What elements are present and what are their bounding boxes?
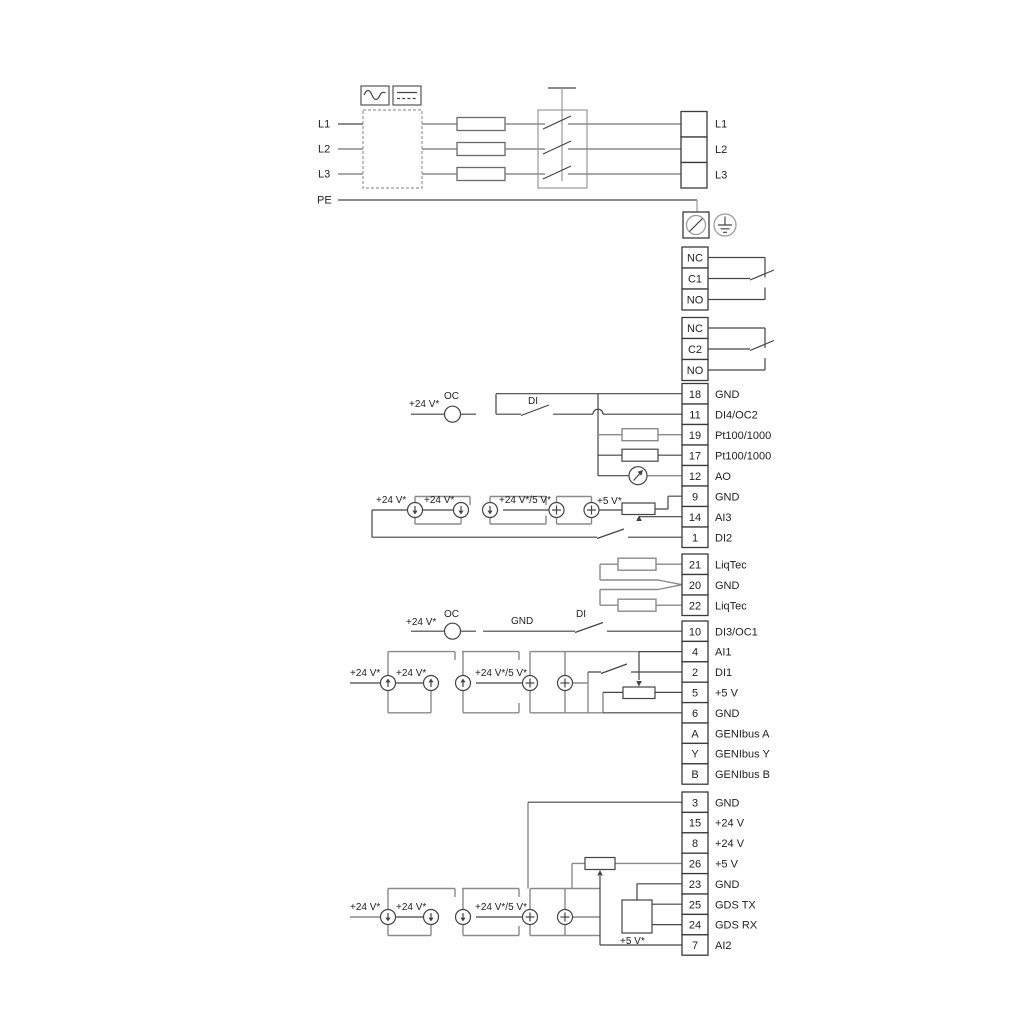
relay2-section: NC C2 NO bbox=[682, 318, 774, 381]
terminal-label: GDS TX bbox=[715, 899, 756, 911]
terminal-label: DI3/OC1 bbox=[715, 626, 758, 638]
terminal-num: 11 bbox=[689, 410, 700, 422]
di3-di-label: DI bbox=[576, 609, 586, 620]
relay1-nc-label: NC bbox=[687, 253, 703, 265]
terminal-strip: 18 GND 11 DI4/OC2 19 Pt100/1000 17 Pt100… bbox=[682, 384, 771, 956]
sensor-plus-icon bbox=[549, 503, 564, 518]
pt100-19-resistor-icon bbox=[622, 429, 658, 441]
sensor-down-icon bbox=[454, 503, 469, 518]
terminal-num: 15 bbox=[689, 818, 701, 830]
sensor-down-icon bbox=[456, 910, 471, 925]
terminal-label: GENIbus Y bbox=[715, 749, 770, 761]
relay2-contact-wires bbox=[708, 328, 774, 370]
ai2-potentiometer-icon bbox=[585, 858, 615, 870]
ai2-main-wires bbox=[396, 802, 683, 945]
relay1-no-label: NO bbox=[687, 295, 704, 307]
terminal-num: 5 bbox=[692, 688, 698, 700]
terminal-label: GND bbox=[715, 580, 740, 592]
terminal-label: LiqTec bbox=[715, 560, 747, 572]
relay2-no-label: NO bbox=[687, 365, 704, 377]
terminal-label: GND bbox=[715, 708, 740, 720]
liqtec-section bbox=[600, 558, 682, 611]
relay2-nc-label: NC bbox=[687, 323, 703, 335]
di3-oc-label: OC bbox=[444, 609, 459, 620]
ai1-section: +24 V* +24 V* +24 V*/5 V* bbox=[350, 652, 682, 713]
power-section: L1 L2 L3 PE L1 L2 L3 bbox=[317, 86, 736, 238]
terminal-num: 19 bbox=[689, 430, 701, 442]
di4-24v-label: +24 V* bbox=[409, 399, 439, 410]
ai1-24v-label-1: +24 V* bbox=[350, 668, 380, 679]
liqtec-sensor-22-icon bbox=[618, 599, 656, 611]
terminal-num: 24 bbox=[689, 920, 701, 932]
relay1-c1-label: C1 bbox=[688, 274, 702, 286]
mains-terminal-l2 bbox=[681, 137, 707, 163]
terminal-num: 17 bbox=[689, 451, 701, 463]
terminal-num: 7 bbox=[692, 940, 698, 952]
wires-switch-to-block bbox=[568, 124, 681, 174]
terminal-num: 6 bbox=[692, 708, 698, 720]
terminal-label: +24 V bbox=[715, 818, 745, 830]
terminal-label: LiqTec bbox=[715, 601, 747, 613]
fuse-l2 bbox=[457, 143, 505, 156]
liqtec-sensor-21-icon bbox=[618, 558, 656, 570]
terminal-num: Y bbox=[691, 749, 699, 761]
terminal-label: +5 V bbox=[715, 688, 739, 700]
ai1-potentiometer-icon bbox=[623, 687, 655, 699]
terminal-num: 1 bbox=[692, 533, 698, 545]
fuse-l1 bbox=[457, 118, 505, 131]
terminal-num: 3 bbox=[692, 797, 698, 809]
open-collector-icon bbox=[445, 406, 461, 422]
relay1-contact-wires bbox=[708, 258, 774, 300]
terminal-num: A bbox=[691, 728, 699, 740]
terminal-label: DI4/OC2 bbox=[715, 410, 758, 422]
gds-sensor-box-icon bbox=[622, 900, 652, 933]
ai1-24v-label-2: +24 V* bbox=[396, 668, 426, 679]
sensor-down-icon bbox=[408, 503, 423, 518]
terminal-num: B bbox=[691, 769, 698, 781]
sensor-down-icon bbox=[381, 910, 396, 925]
ai2-24v-5v-label: +24 V*/5 V* bbox=[475, 902, 527, 913]
terminal-num: 10 bbox=[689, 626, 701, 638]
terminal-label: GDS RX bbox=[715, 920, 758, 932]
terminal-label: GND bbox=[715, 492, 740, 504]
terminal-label: AO bbox=[715, 471, 731, 483]
input-label-l3: L3 bbox=[318, 169, 330, 181]
sensor-plus-icon bbox=[558, 910, 573, 925]
ai1-main-wires bbox=[350, 652, 682, 713]
out-label-l1: L1 bbox=[715, 119, 727, 131]
mains-terminal-l1 bbox=[681, 112, 707, 138]
wires-fuses-to-switch bbox=[505, 124, 545, 174]
terminal-label: GND bbox=[715, 389, 740, 401]
terminal-num: 14 bbox=[689, 512, 701, 524]
ai3-24v-5v-label: +24 V*/5 V* bbox=[499, 495, 551, 506]
di4-section: +24 V* OC DI bbox=[409, 391, 682, 485]
terminal-num: 25 bbox=[689, 899, 701, 911]
di3-gnd-label: GND bbox=[511, 616, 533, 627]
terminal-num: 12 bbox=[689, 471, 701, 483]
di3-section: +24 V* OC GND DI bbox=[406, 609, 682, 639]
ai1-24v-5v-label: +24 V*/5 V* bbox=[475, 668, 527, 679]
di4-di-label: DI bbox=[528, 396, 538, 407]
sensor-plus-icon bbox=[558, 676, 573, 691]
out-label-l3: L3 bbox=[715, 170, 727, 182]
pt100-17-resistor-icon bbox=[622, 449, 658, 461]
terminal-num: 4 bbox=[692, 647, 698, 659]
ai3-5v-label: +5 V* bbox=[597, 496, 622, 507]
ai2-24v-label-1: +24 V* bbox=[350, 902, 380, 913]
input-label-l1: L1 bbox=[318, 119, 330, 131]
wires-l2-l3-in bbox=[338, 149, 363, 174]
terminal-label: AI1 bbox=[715, 647, 732, 659]
terminal-num: 21 bbox=[689, 560, 701, 572]
terminal-label: Pt100/1000 bbox=[715, 430, 771, 442]
terminal-label: GENIbus A bbox=[715, 728, 770, 740]
ai2-bracket-wires bbox=[350, 802, 682, 935]
ai2-wiper-arrowhead bbox=[597, 870, 603, 876]
mains-terminal-l3 bbox=[681, 163, 707, 189]
relay2-c2-label: C2 bbox=[688, 344, 702, 356]
terminal-label: AI3 bbox=[715, 512, 732, 524]
terminal-label: GENIbus B bbox=[715, 769, 770, 781]
terminal-label: Pt100/1000 bbox=[715, 451, 771, 463]
terminal-num: 8 bbox=[692, 838, 698, 850]
converter-dashed-box bbox=[363, 110, 422, 188]
ai3-pot-wires bbox=[639, 496, 682, 517]
terminal-num: 18 bbox=[689, 389, 701, 401]
terminal-num: 26 bbox=[689, 859, 701, 871]
terminal-label: GND bbox=[715, 797, 740, 809]
dc-symbol-box bbox=[393, 86, 421, 105]
ai1-wiper-arrowhead bbox=[636, 681, 642, 687]
terminal-num: 20 bbox=[689, 580, 701, 592]
ai3-section: +24 V* +24 V* +24 V*/5 V* +5 V* bbox=[372, 495, 682, 539]
terminal-num: 2 bbox=[692, 667, 698, 679]
terminal-label: +5 V bbox=[715, 859, 739, 871]
di4-oc-label: OC bbox=[444, 391, 459, 402]
terminal-num: 23 bbox=[689, 879, 701, 891]
sensor-down-icon bbox=[483, 503, 498, 518]
relay1-section: NC C1 NO bbox=[682, 247, 774, 310]
ai2-section: +24 V* +24 V* +24 V*/5 V* +5 V* bbox=[350, 802, 682, 947]
diagram-canvas: L1 L2 L3 PE L1 L2 L3 bbox=[0, 0, 1024, 1024]
input-label-l2: L2 bbox=[318, 144, 330, 156]
out-label-l2: L2 bbox=[715, 144, 727, 156]
terminal-label: DI2 bbox=[715, 533, 732, 545]
terminal-label: AI2 bbox=[715, 940, 732, 952]
terminal-label: DI1 bbox=[715, 667, 732, 679]
wires-box-to-fuses bbox=[422, 124, 457, 174]
ai3-24v-label-1: +24 V* bbox=[376, 495, 406, 506]
sensor-up-icon bbox=[381, 676, 396, 691]
switch-blades bbox=[543, 116, 571, 179]
ai3-potentiometer-icon bbox=[622, 503, 655, 515]
ai2-24v-label-2: +24 V* bbox=[396, 902, 426, 913]
wiring-diagram: L1 L2 L3 PE L1 L2 L3 bbox=[0, 0, 1024, 1024]
earth-symbol-icon bbox=[718, 217, 732, 233]
terminal-label: GND bbox=[715, 879, 740, 891]
fuse-l3 bbox=[457, 168, 505, 181]
ac-symbol-box bbox=[361, 86, 389, 105]
input-label-pe: PE bbox=[317, 195, 332, 207]
terminal-num: 9 bbox=[692, 492, 698, 504]
terminal-label: +24 V bbox=[715, 838, 745, 850]
open-collector-icon bbox=[445, 623, 461, 639]
ai2-5v-label: +5 V* bbox=[620, 936, 645, 947]
sensor-up-icon bbox=[456, 676, 471, 691]
di3-24v-label: +24 V* bbox=[406, 617, 436, 628]
terminal-num: 22 bbox=[689, 601, 701, 613]
ai3-24v-label-2: +24 V* bbox=[424, 495, 454, 506]
